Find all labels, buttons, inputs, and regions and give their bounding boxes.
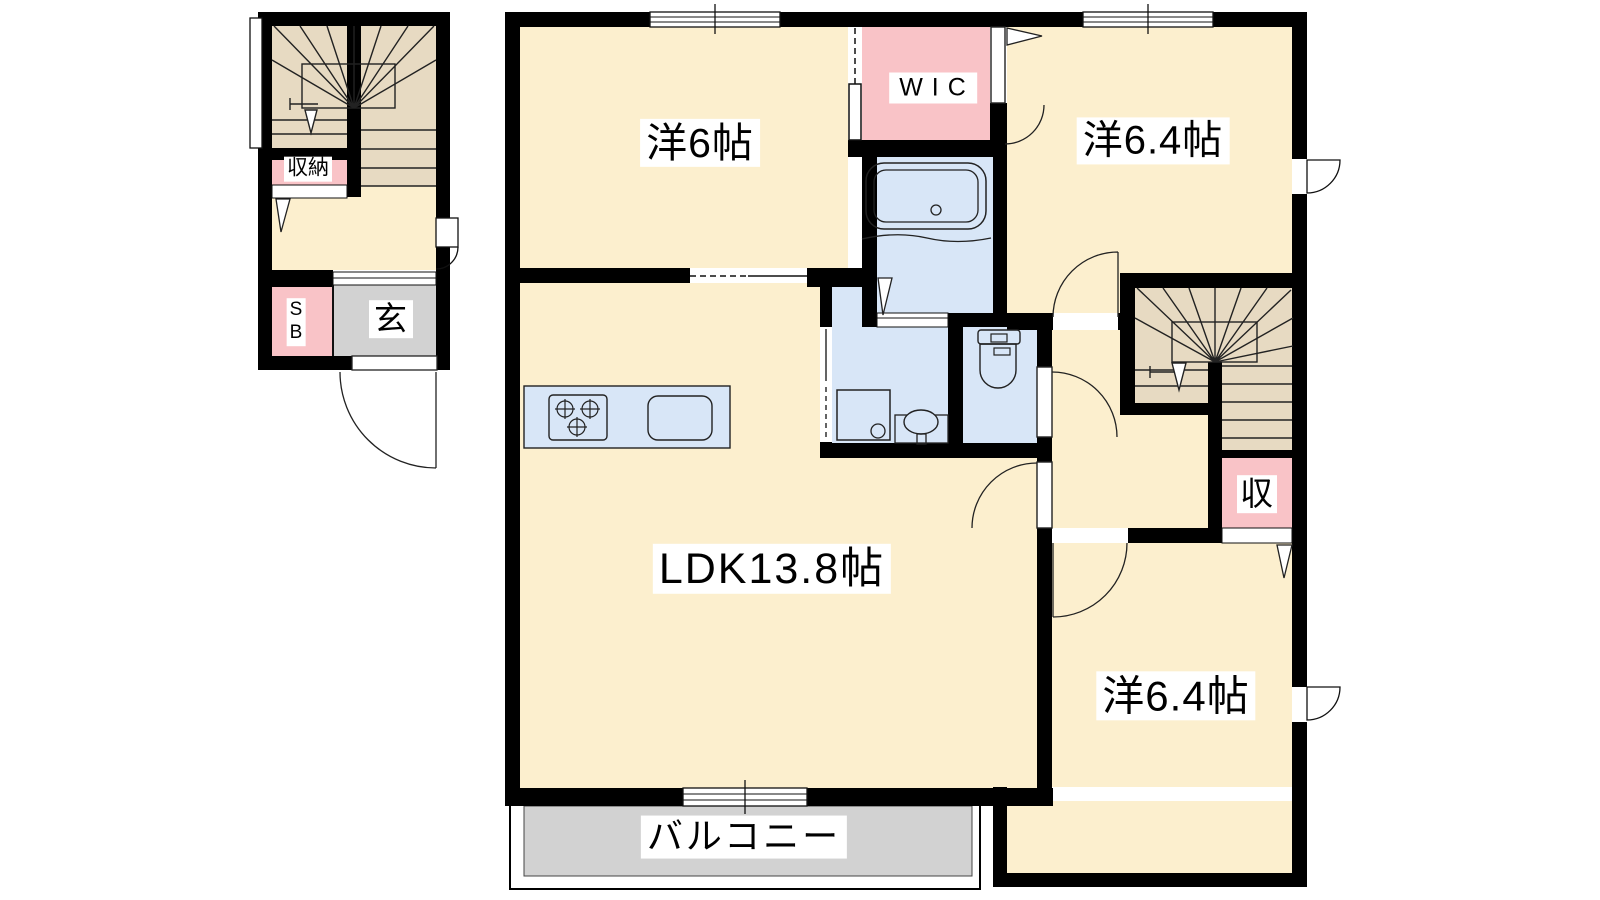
wall [1120,273,1293,288]
hallway-floor [1052,330,1122,528]
door-leaf [991,27,1005,103]
wall [347,108,361,197]
exterior-ledge [250,18,262,148]
floor-plan-drawing [0,0,1600,900]
opening [1053,528,1128,543]
wall [990,103,1007,140]
ldk-floor [520,283,820,788]
bedroom3-floor [1007,801,1292,873]
vanity-sink [904,410,938,434]
wall [993,157,1007,327]
wall [820,287,832,327]
closet-opening [272,185,347,198]
wall [1208,362,1222,543]
room-label-bedroom3: 洋6.4帖 [1096,671,1255,720]
wall [436,12,450,218]
entrance-threshold [352,356,437,370]
room-label-ldk: LDK13.8帖 [653,544,891,594]
wall [993,873,1307,887]
wall [258,12,450,26]
wall [820,443,1052,458]
door-leaf [849,84,861,140]
stairs1f-floor [361,108,436,186]
wall [505,12,520,806]
room-label-bedroom1: 洋6帖 [640,119,760,167]
closet-opening [1222,528,1292,543]
wall [993,787,1007,887]
room-label-entrance: 玄 [369,300,413,338]
hall1f-floor [272,186,436,270]
door-outswing [1292,159,1340,194]
wall [520,268,690,283]
wall [258,356,352,370]
wall [1037,437,1052,462]
hallway-floor [1122,415,1208,528]
door-arc [340,372,436,468]
room-label-closet-2f: 収 [1237,475,1277,513]
room-label-balcony: バルコニー [641,816,847,859]
room-label-shoe-box: S B [287,298,306,346]
bedroom2-floor [1007,273,1120,313]
wall [1120,273,1135,415]
door-leaf [1037,367,1052,437]
ldk-floor [812,458,1037,788]
wall [1007,313,1053,330]
wall [258,270,333,287]
opening [1053,313,1118,330]
room-label-bedroom2: 洋6.4帖 [1077,117,1230,164]
wall [1292,12,1307,887]
door-leaf [1037,462,1052,528]
floor-plan: 洋6帖 WIC 洋6.4帖 LDK13.8帖 洋6.4帖 バルコニー 収 収納 … [0,0,1600,900]
room-label-wic: WIC [889,73,977,104]
bedroom3-floor [1052,543,1292,787]
bath-threshold [877,313,948,327]
door-outswing [1292,687,1340,722]
wall [1037,527,1052,788]
wall [1128,528,1222,543]
wall [1222,450,1293,458]
wall [1120,403,1222,415]
wall [807,268,862,287]
wall [948,327,963,443]
room-label-closet-1f: 収納 [284,157,332,182]
